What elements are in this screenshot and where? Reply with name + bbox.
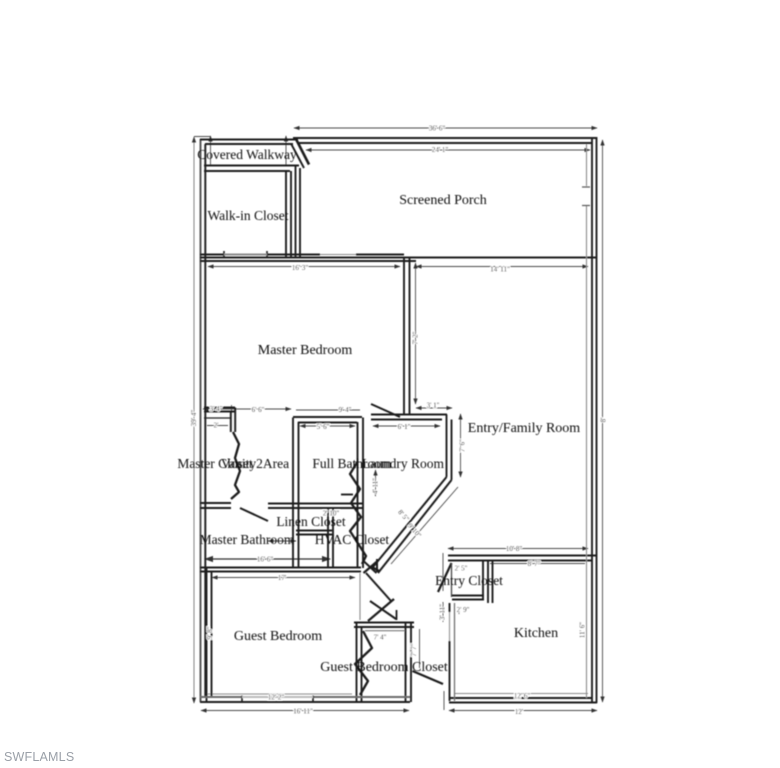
- svg-text:Covered Walkway: Covered Walkway: [197, 147, 297, 162]
- svg-text:3' 4": 3' 4": [210, 405, 223, 413]
- svg-text:Laundry Room: Laundry Room: [362, 456, 445, 471]
- svg-text:36' 6": 36' 6": [429, 125, 446, 133]
- svg-text:12' 2": 12' 2": [268, 694, 285, 702]
- svg-text:Entry/Family Room: Entry/Family Room: [468, 421, 581, 436]
- svg-text:2' 5": 2' 5": [455, 565, 468, 573]
- svg-text:17': 17': [278, 574, 286, 582]
- svg-text:5' 6": 5' 6": [317, 423, 330, 431]
- svg-text:Entry Closet: Entry Closet: [435, 573, 503, 588]
- svg-text:Vanity2Area: Vanity2Area: [221, 456, 289, 471]
- svg-text:7' 4": 7' 4": [374, 634, 387, 642]
- svg-text:6' 1": 6' 1": [398, 423, 411, 431]
- svg-text:Guest Bedroom Closet: Guest Bedroom Closet: [320, 660, 448, 675]
- svg-text:12' 6": 12' 6": [514, 692, 531, 700]
- svg-text:8' 5": 8' 5": [396, 508, 411, 523]
- svg-text:Master Bedroom: Master Bedroom: [258, 343, 353, 358]
- svg-text:2' 10": 2' 10": [323, 510, 340, 518]
- svg-text:3' 11": 3' 11": [439, 604, 447, 620]
- svg-text:16' 11": 16' 11": [293, 708, 313, 716]
- svg-text:Master Bathroom: Master Bathroom: [200, 532, 295, 547]
- svg-text:8': 8': [600, 418, 608, 423]
- svg-text:7' 6": 7' 6": [459, 439, 467, 452]
- svg-text:16' 6": 16' 6": [257, 556, 274, 564]
- svg-text:8' 7": 8' 7": [528, 560, 541, 568]
- svg-text:7' 2": 7' 2": [412, 331, 420, 344]
- svg-text:2': 2': [214, 422, 219, 430]
- svg-text:Screened Porch: Screened Porch: [399, 193, 486, 208]
- svg-text:24' 1": 24' 1": [432, 146, 449, 154]
- svg-text:10' 8": 10' 8": [506, 545, 523, 553]
- svg-text:3' 1": 3' 1": [427, 402, 440, 410]
- svg-text:Kitchen: Kitchen: [514, 626, 558, 641]
- svg-text:6' 6": 6' 6": [252, 406, 265, 414]
- svg-text:16' 3": 16' 3": [292, 264, 309, 272]
- svg-text:14' 11": 14' 11": [490, 266, 510, 274]
- svg-text:11' 6": 11' 6": [579, 622, 587, 638]
- svg-text:Walk-in Closet: Walk-in Closet: [207, 208, 288, 223]
- svg-text:Guest Bedroom: Guest Bedroom: [234, 629, 322, 644]
- svg-text:9' 4": 9' 4": [339, 406, 352, 414]
- svg-text:7' 7": 7' 7": [410, 643, 418, 656]
- svg-text:12': 12': [515, 708, 523, 716]
- svg-text:2' 9": 2' 9": [457, 606, 470, 614]
- svg-text:4' 11": 4' 11": [372, 478, 380, 494]
- svg-text:9' 8": 9' 8": [206, 626, 214, 639]
- svg-text:HVAC Closet: HVAC Closet: [315, 532, 390, 547]
- svg-text:39' 4": 39' 4": [190, 410, 198, 427]
